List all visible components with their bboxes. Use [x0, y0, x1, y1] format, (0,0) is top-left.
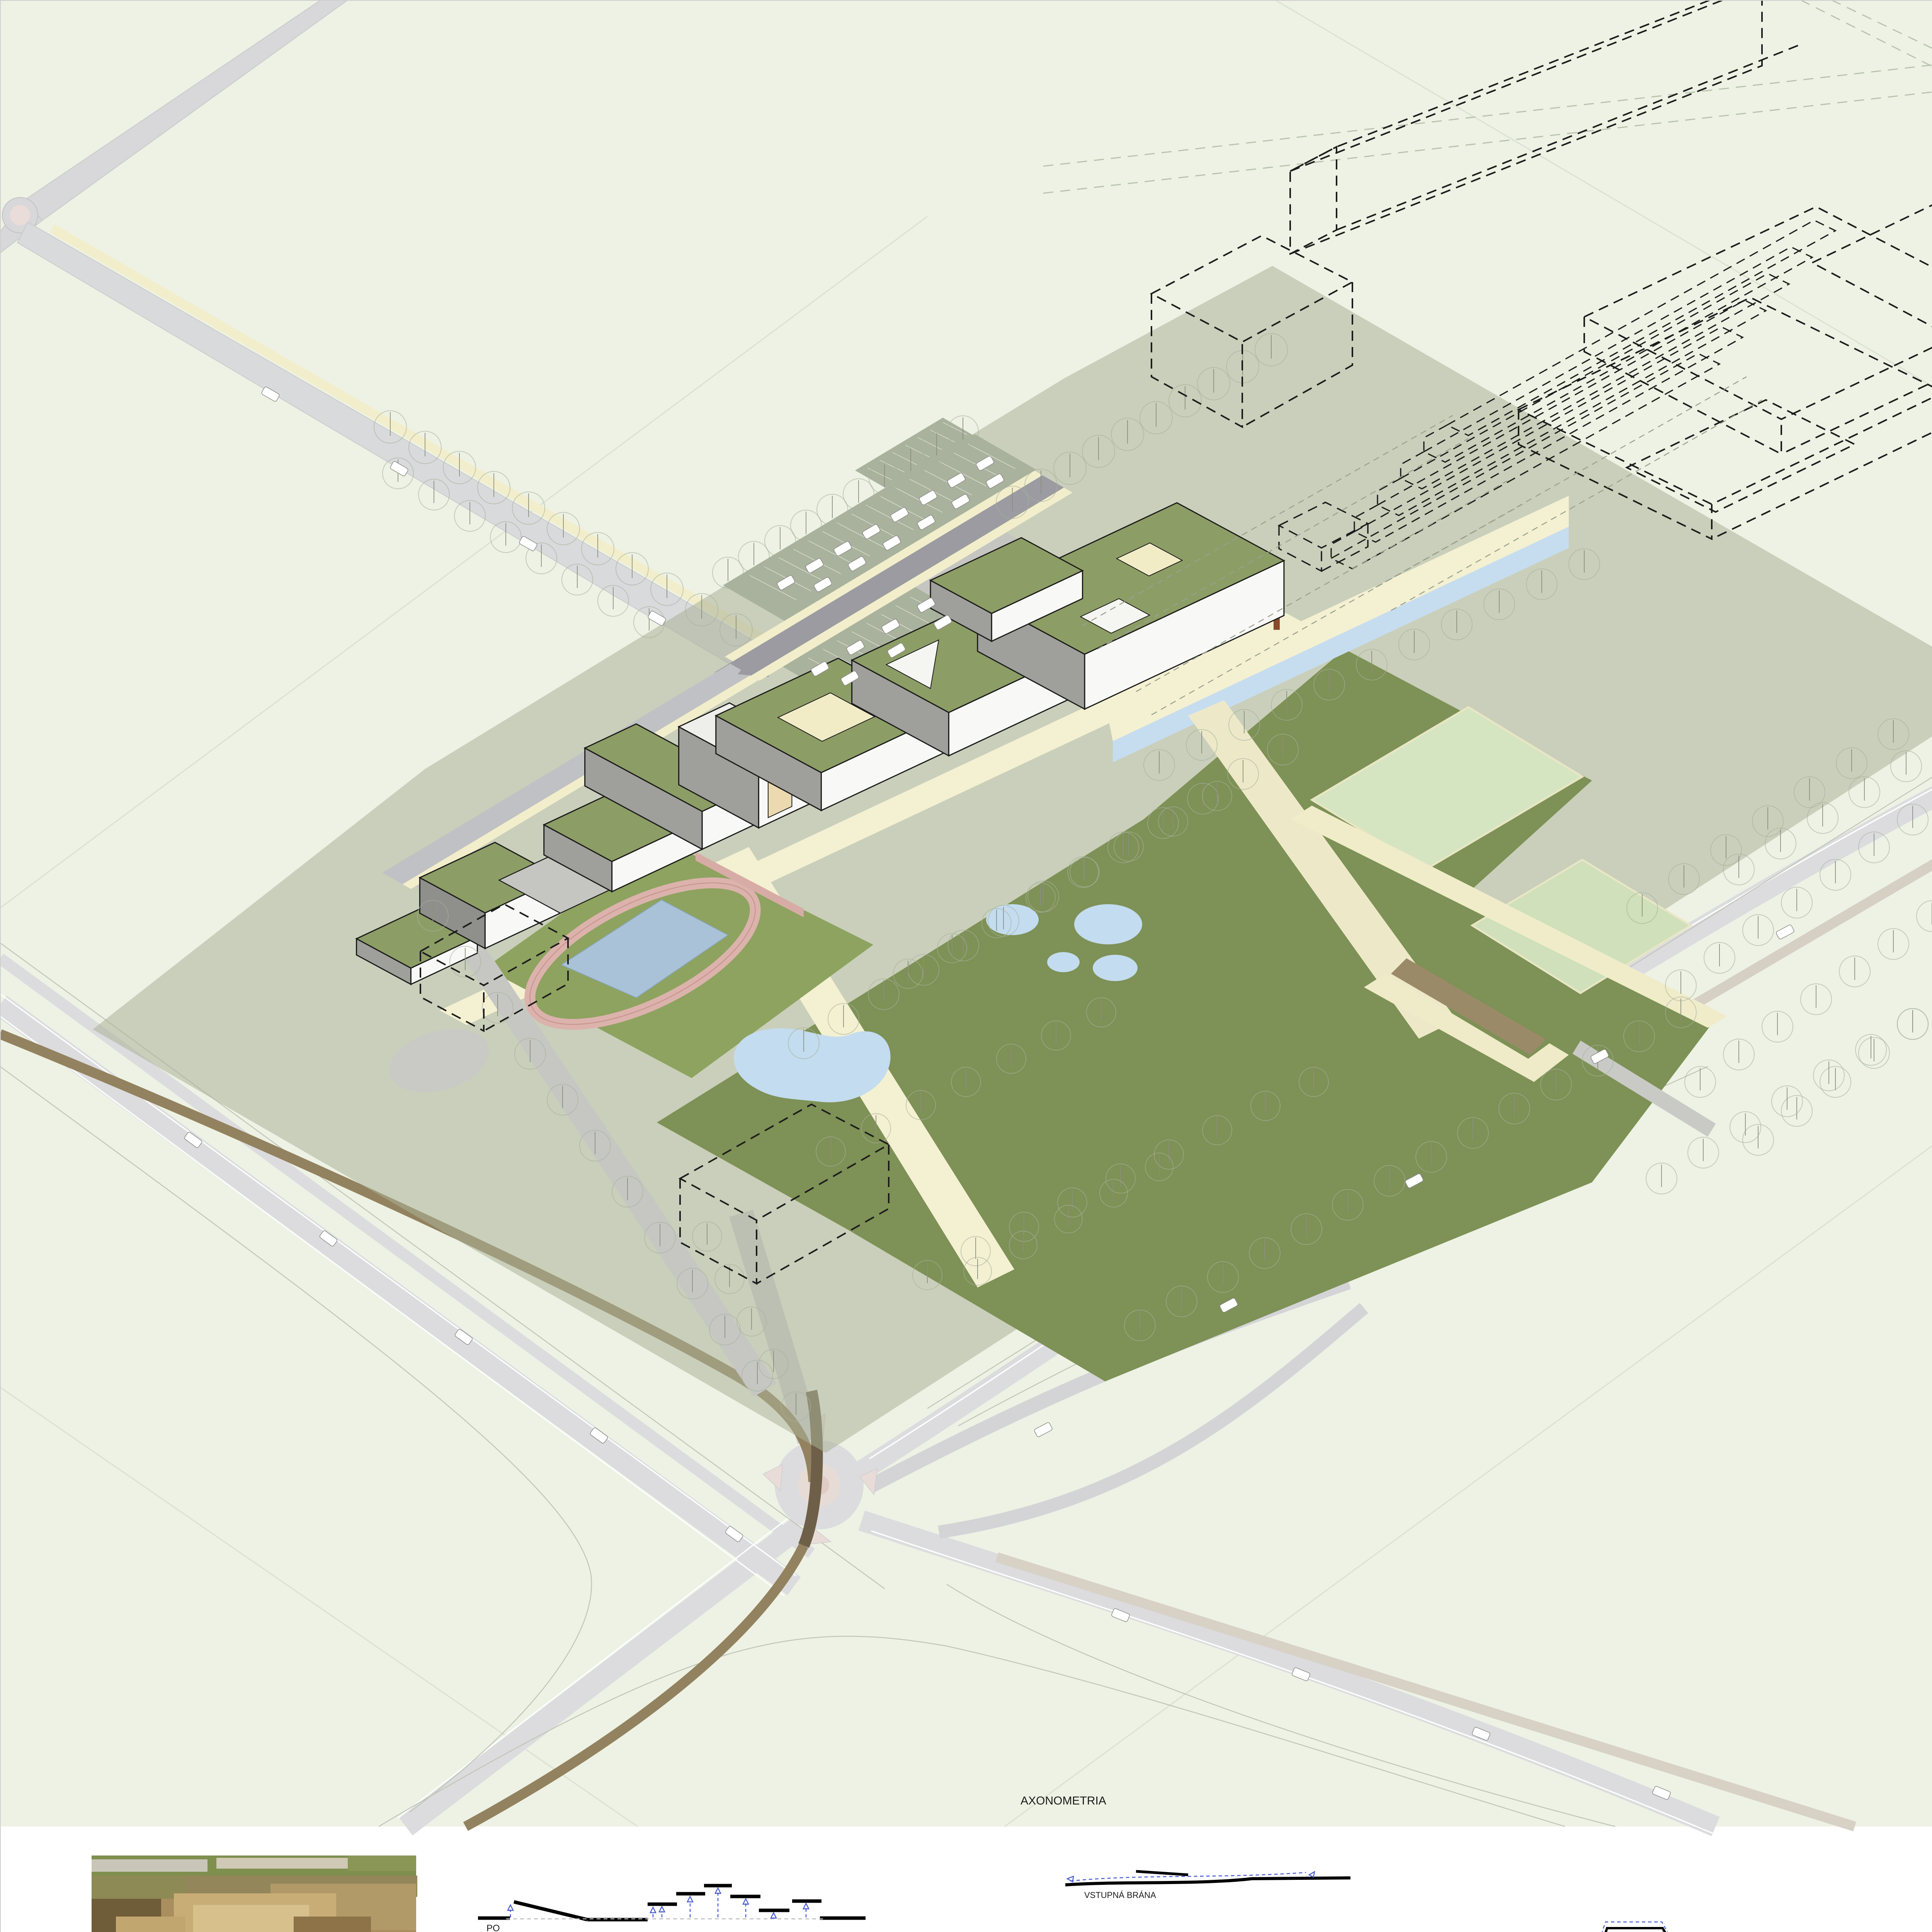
svg-text:AXONOMETRIA: AXONOMETRIA	[1020, 1794, 1106, 1807]
svg-text:PO: PO	[486, 1923, 500, 1932]
svg-text:VSTUPNÁ BRÁNA: VSTUPNÁ BRÁNA	[1084, 1890, 1156, 1900]
